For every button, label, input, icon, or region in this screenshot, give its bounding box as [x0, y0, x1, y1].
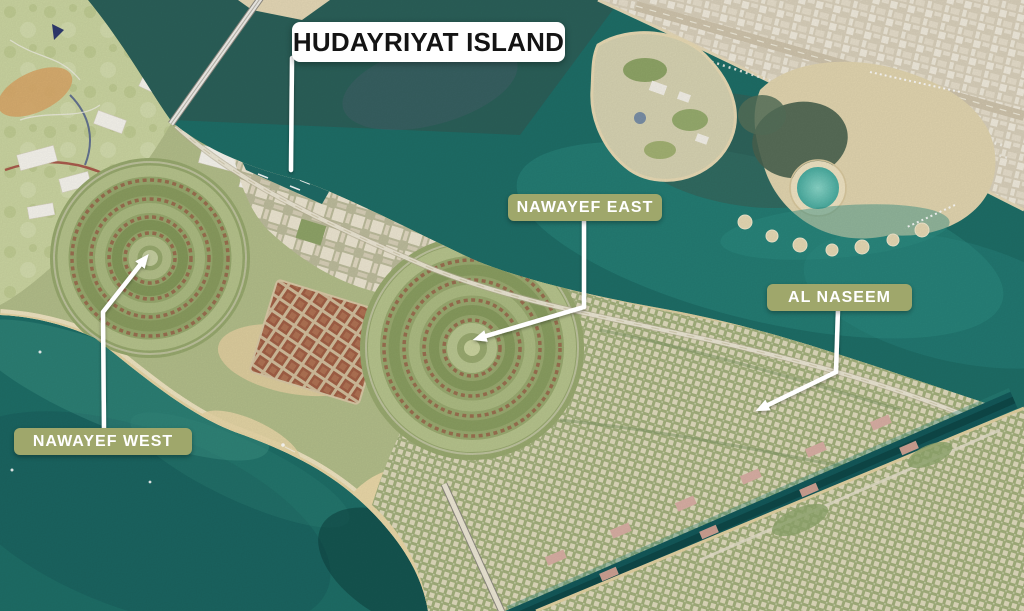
map-title: HUDAYRIYAT ISLAND	[292, 22, 565, 62]
district-label-al-naseem: AL NASEEM	[767, 284, 912, 311]
leader-line-title	[291, 58, 292, 170]
news-map-graphic: HUDAYRIYAT ISLAND NAWAYEF EAST AL NASEEM…	[0, 0, 1024, 611]
district-label-nawayef-east: NAWAYEF EAST	[508, 194, 662, 221]
district-label-nawayef-west: NAWAYEF WEST	[14, 428, 192, 455]
